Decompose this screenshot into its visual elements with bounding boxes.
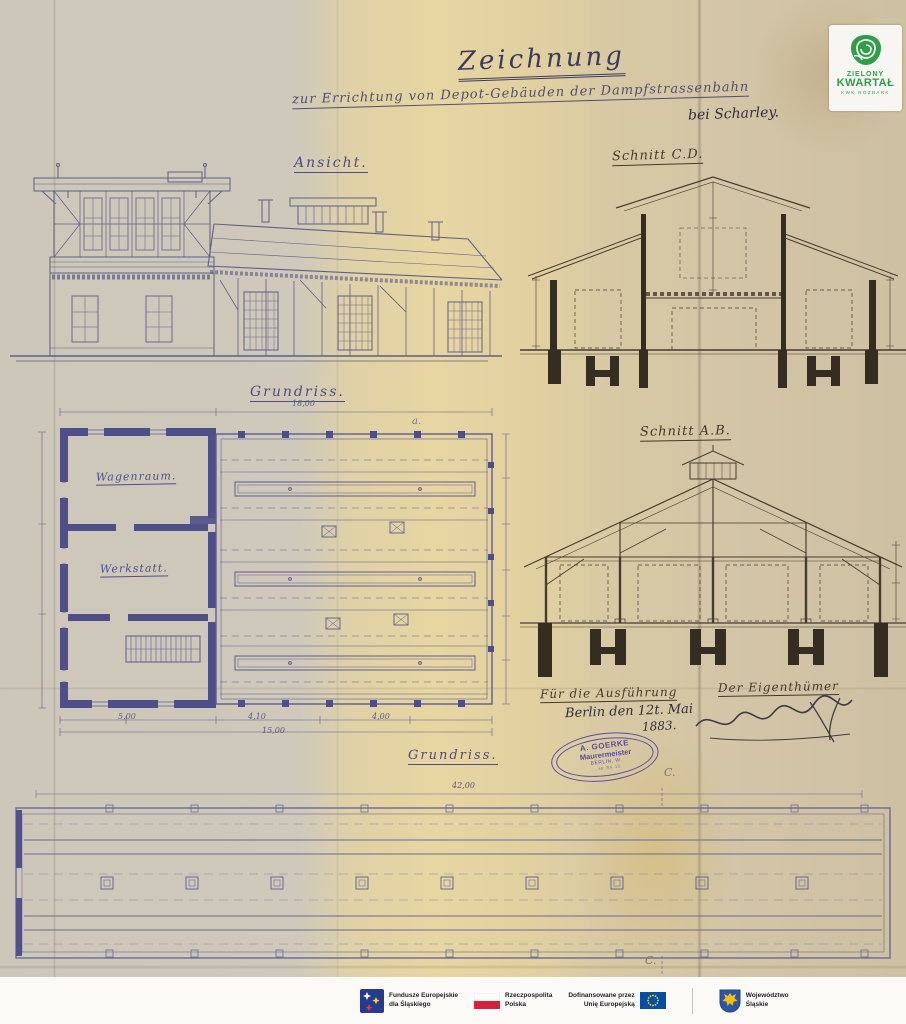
silesia-lockup: Województwo Śląskie xyxy=(719,989,789,1013)
label-room-wagenraum: Wagenraum. xyxy=(96,469,177,485)
silesia-coat-of-arms-icon xyxy=(719,989,741,1013)
dim-plan-bay-1: 5,00 xyxy=(118,712,136,721)
track-plan-drawing xyxy=(6,788,900,974)
badge-line2: KWARTAŁ xyxy=(829,77,902,89)
poland-text-line2: Polska xyxy=(505,1001,552,1009)
sheet-location: bei Scharley. xyxy=(688,104,779,123)
dim-plan-width: 18,00 xyxy=(292,399,315,408)
eu-funding-text-line1: Dofinansowane przez xyxy=(568,992,634,1000)
owner-signature xyxy=(690,690,875,750)
label-room-werkstatt: Werkstatt. xyxy=(100,561,168,577)
dim-plan-bay-3: 4,00 xyxy=(372,712,390,721)
rose-icon xyxy=(846,30,886,70)
plan-section-mark: a. xyxy=(412,416,421,427)
execution-heading: Für die Ausführung xyxy=(540,685,678,703)
sheet-title: Zeichnung xyxy=(457,41,625,82)
eu-funding-lockup: Dofinansowane przez Unię Europejską xyxy=(568,992,665,1009)
poland-flag-icon xyxy=(474,993,500,1009)
silesia-text-line2: Śląskie xyxy=(746,1001,789,1009)
label-grundriss-bottom: Grundriss. xyxy=(408,748,498,765)
silesia-text-line1: Województwo xyxy=(746,992,789,1000)
poland-text-line1: Rzeczpospolita xyxy=(505,992,552,1000)
fundusze-text-line1: Fundusze Europejskie xyxy=(389,992,458,1000)
badge-line3: KWK ROZBARK xyxy=(829,90,902,95)
dim-track-plan-length: 42,00 xyxy=(452,781,475,790)
section-cd-drawing xyxy=(520,158,906,390)
footer-divider xyxy=(692,988,693,1014)
poland-lockup: Rzeczpospolita Polska xyxy=(474,992,552,1008)
drawing-sheet: ZIELONY KWARTAŁ KWK ROZBARK Zeichnung zu… xyxy=(0,0,906,1024)
section-ab-drawing xyxy=(520,445,906,680)
eu-funding-text-line2: Unię Europejską xyxy=(568,1001,634,1009)
footer-logo-bar: Fundusze Europejskie dla Śląskiego Rzecz… xyxy=(0,977,906,1024)
sheet-subtitle: zur Errichtung von Depot-Gebäuden der Da… xyxy=(292,80,750,110)
dim-plan-bay-2: 4,10 xyxy=(248,712,266,721)
section-mark-top: C. xyxy=(664,766,676,779)
section-mark-bottom: C. xyxy=(645,954,657,967)
label-schnitt-ab: Schnitt A.B. xyxy=(640,423,731,442)
elevation-drawing xyxy=(8,160,504,370)
fundusze-text-line2: dla Śląskiego xyxy=(389,1001,458,1009)
fundusze-europejskie-lockup: Fundusze Europejskie dla Śląskiego xyxy=(360,989,458,1013)
dim-plan-total: 15,00 xyxy=(262,726,285,735)
zielony-kwartal-badge: ZIELONY KWARTAŁ KWK ROZBARK xyxy=(829,25,902,111)
eu-flag-icon xyxy=(640,992,666,1009)
fundusze-europejskie-logo-icon xyxy=(360,989,384,1013)
